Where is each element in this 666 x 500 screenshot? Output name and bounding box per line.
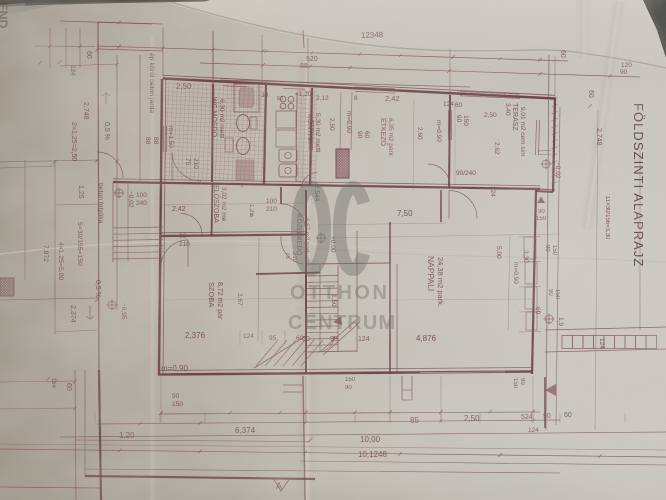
svg-text:CENTRUM: CENTRUM: [288, 312, 396, 334]
svg-text:OTTHON: OTTHON: [290, 282, 389, 304]
